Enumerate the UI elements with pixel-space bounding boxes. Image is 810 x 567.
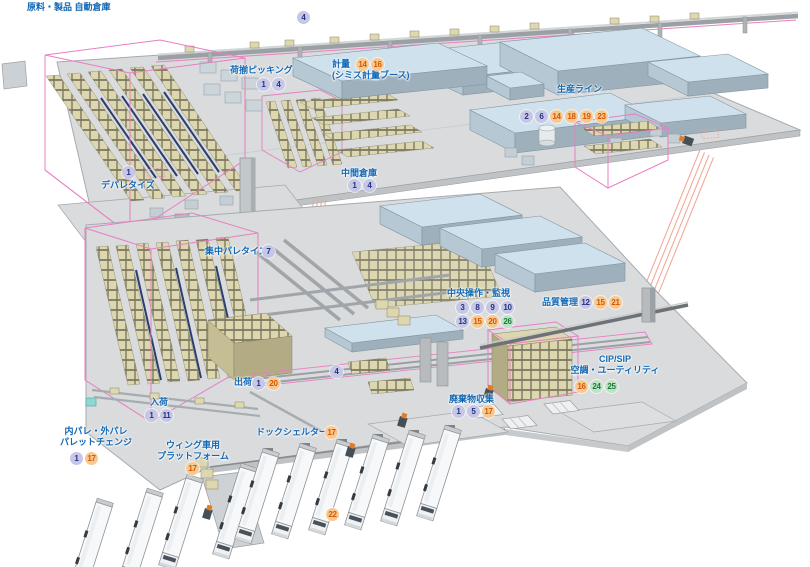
waste-collection-badge-1: 1: [452, 405, 465, 418]
intermediate-warehouse-badge-1: 1: [348, 179, 361, 192]
shipping-badge-20: 20: [267, 377, 280, 390]
central-operation-monitoring-badge-15: 15: [471, 315, 484, 328]
wing-truck-platform-label: ウィング車用プラットフォーム: [155, 440, 231, 462]
receiving-label: 入荷: [150, 397, 168, 408]
waste-collection-badge-17: 17: [482, 405, 495, 418]
central-operation-monitoring-badge-26: 26: [501, 315, 514, 328]
weighing-badge-16: 16: [371, 58, 384, 71]
central-operation-monitoring-badge-3: 3: [456, 301, 469, 314]
quality-control-badge-15: 15: [594, 296, 607, 309]
quality-control-badge-21: 21: [609, 296, 622, 309]
receiving-badge-11: 11: [160, 409, 173, 422]
waste-collection-badge-5: 5: [467, 405, 480, 418]
production-line-badge-2: 2: [520, 110, 533, 123]
waste-collection-label: 廃棄物収集: [449, 394, 494, 405]
lower-conveyor-badge-4: 4: [330, 365, 343, 378]
shipping-label: 出荷: [234, 377, 252, 388]
weighing-badge-14: 14: [356, 58, 369, 71]
quality-control-badge-12: 12: [579, 296, 592, 309]
receiving-badge-1: 1: [145, 409, 158, 422]
pallet-change-badge-17: 17: [85, 452, 98, 465]
central-operation-monitoring-badge-10: 10: [501, 301, 514, 314]
load-picking-label: 荷揃ピッキング: [230, 65, 293, 76]
pallet-change-badge-1: 1: [70, 452, 83, 465]
pallet-change-label: 内パレ・外パレパレットチェンジ: [58, 426, 134, 448]
depalletize-label: デパレタイズ: [101, 180, 155, 191]
labels-layer: 原料・製品 自動倉庫4荷揃ピッキング14計量(シミズ計量ブース)1416生産ライ…: [0, 0, 810, 567]
wing-truck-platform-badge-17: 17: [186, 462, 199, 475]
production-line-badge-6: 6: [535, 110, 548, 123]
factory-layout-diagram: 原料・製品 自動倉庫4荷揃ピッキング14計量(シミズ計量ブース)1416生産ライ…: [0, 0, 810, 567]
dock-shelter-badge-17: 17: [325, 426, 338, 439]
central-operation-monitoring-badge-8: 8: [471, 301, 484, 314]
overhead-conveyor-badge-4: 4: [297, 11, 310, 24]
central-palletize-label: 集中パレタイズ: [205, 246, 268, 257]
production-line-badge-18: 18: [565, 110, 578, 123]
production-line-label: 生産ライン: [557, 84, 602, 95]
dock-shelter-label: ドックシェルター: [256, 427, 328, 438]
quality-control-label: 品質管理: [542, 297, 578, 308]
cip-sip-utility-label: CIP/SIP空調・ユーティリティ: [570, 354, 660, 376]
central-palletize-badge-7: 7: [262, 245, 275, 258]
cip-sip-utility-badge-24: 24: [590, 380, 603, 393]
cip-sip-utility-badge-25: 25: [605, 380, 618, 393]
truck-yard-badge-22: 22: [326, 508, 339, 521]
cip-sip-utility-badge-16: 16: [575, 380, 588, 393]
raw-product-auto-warehouse-label: 原料・製品 自動倉庫: [27, 2, 111, 13]
load-picking-badge-1: 1: [257, 78, 270, 91]
production-line-badge-23: 23: [595, 110, 608, 123]
load-picking-badge-4: 4: [272, 78, 285, 91]
central-operation-monitoring-badge-9: 9: [486, 301, 499, 314]
intermediate-warehouse-label: 中間倉庫: [341, 168, 377, 179]
production-line-badge-14: 14: [550, 110, 563, 123]
central-operation-monitoring-badge-20: 20: [486, 315, 499, 328]
shipping-badge-1: 1: [252, 377, 265, 390]
central-operation-monitoring-label: 中央操作・監視: [447, 288, 510, 299]
central-operation-monitoring-badge-13: 13: [456, 315, 469, 328]
depalletize-badge-1: 1: [122, 166, 135, 179]
production-line-badge-19: 19: [580, 110, 593, 123]
intermediate-warehouse-badge-4: 4: [363, 179, 376, 192]
